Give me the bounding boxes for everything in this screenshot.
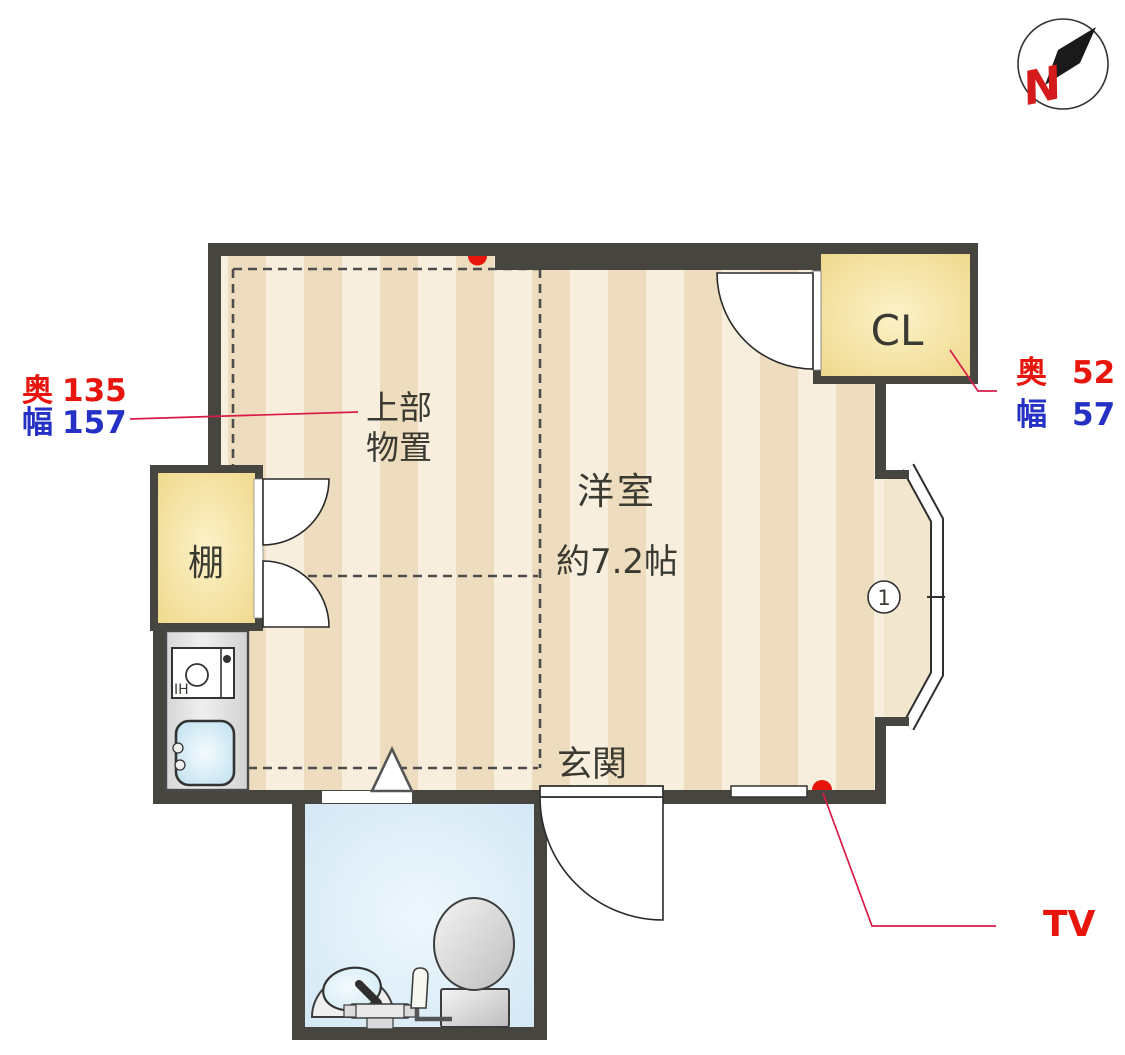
shelf-label: 棚 bbox=[188, 543, 224, 584]
closet-label: CL bbox=[871, 306, 924, 355]
window-number-badge: 1 bbox=[868, 581, 900, 613]
width-value: 57 bbox=[1072, 397, 1115, 433]
width-label: 幅 bbox=[22, 405, 53, 441]
bathroom-doorway bbox=[322, 791, 412, 803]
faucet-icon bbox=[173, 743, 183, 753]
burner-icon bbox=[186, 664, 208, 686]
compass: N bbox=[1018, 19, 1108, 116]
tv-label: TV bbox=[1043, 904, 1096, 945]
control-dot-icon bbox=[223, 655, 231, 663]
floorplan-page: CL 棚 IH bbox=[0, 0, 1125, 1055]
toilet bbox=[434, 898, 514, 1027]
wall-right-upper bbox=[875, 380, 886, 479]
entrance-label: 玄関 bbox=[557, 745, 627, 785]
ih-stove: IH bbox=[172, 648, 234, 698]
width-label: 幅 bbox=[1016, 397, 1047, 433]
depth-value: 52 bbox=[1072, 355, 1115, 391]
entrance-door-swing bbox=[540, 797, 663, 920]
shelf-door-jamb bbox=[254, 479, 263, 618]
kitchen-sink bbox=[173, 721, 234, 785]
main-room-size: 約7.2帖 bbox=[556, 542, 678, 582]
entrance-door-leaf bbox=[540, 786, 663, 797]
basin-tap bbox=[411, 968, 428, 1008]
bay-stub-top bbox=[875, 470, 909, 479]
wall-top-thick bbox=[495, 243, 819, 270]
width-value: 157 bbox=[62, 405, 127, 441]
depth-label: 奥 bbox=[1016, 355, 1047, 391]
wall-left-lower bbox=[153, 625, 166, 804]
dimension-closet: 奥 52 幅 57 bbox=[1016, 355, 1115, 433]
depth-label: 奥 bbox=[22, 373, 53, 409]
dimension-upper-storage: 奥 135 幅 157 bbox=[22, 373, 127, 441]
bottom-window bbox=[731, 786, 807, 797]
wall-left-upper bbox=[208, 243, 221, 470]
upper-storage-label-2: 物置 bbox=[366, 428, 432, 467]
depth-value: 135 bbox=[62, 373, 127, 409]
leader-tv bbox=[823, 793, 996, 926]
wall-right-lower bbox=[875, 717, 886, 804]
faucet-icon bbox=[175, 760, 185, 770]
window-number: 1 bbox=[877, 586, 890, 610]
kitchen-counter: IH bbox=[166, 631, 248, 790]
floorplan-svg: CL 棚 IH bbox=[0, 0, 1125, 1055]
upper-storage-label-1: 上部 bbox=[366, 388, 432, 427]
ih-label: IH bbox=[174, 682, 189, 698]
bathroom bbox=[292, 749, 547, 1040]
main-room-label: 洋室 bbox=[577, 470, 657, 513]
